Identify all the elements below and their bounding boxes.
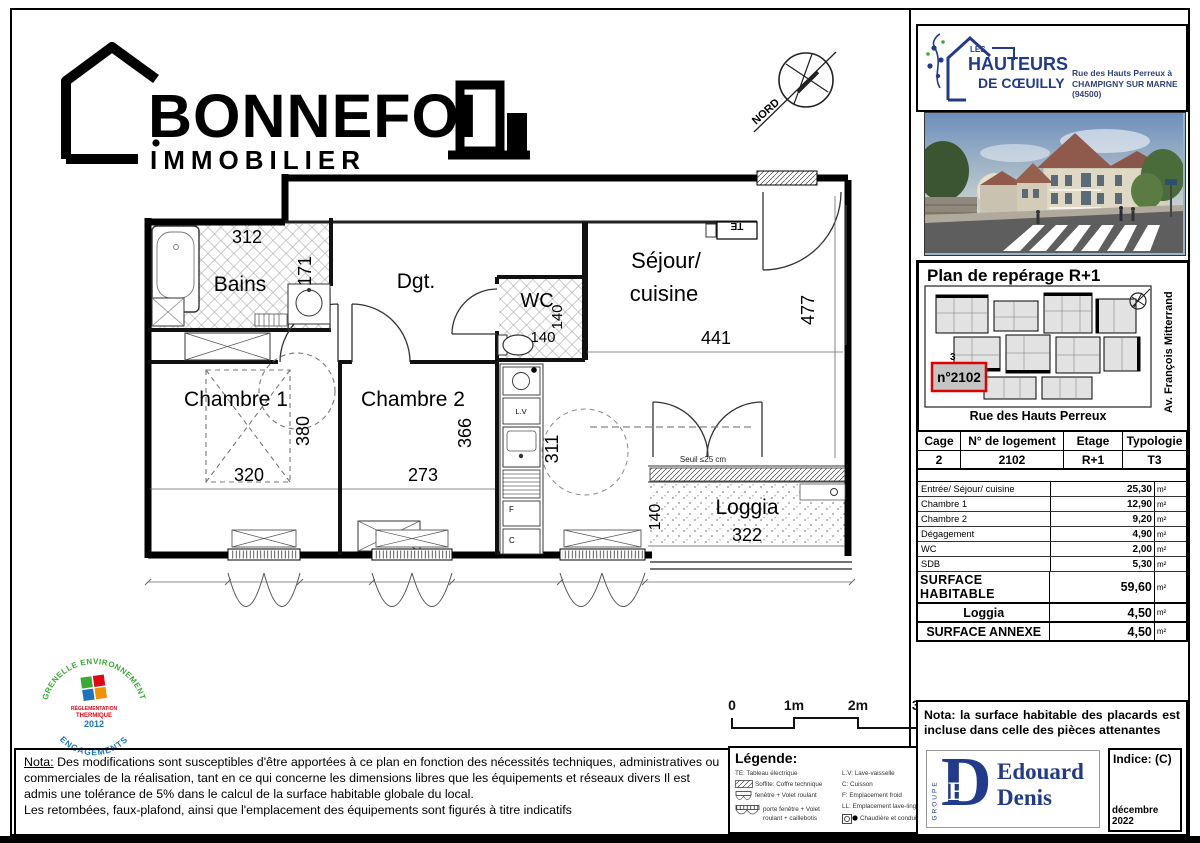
indice-label: Indice: (C) <box>1113 752 1172 766</box>
dim-bains-height: 171 <box>295 256 315 286</box>
building-render <box>925 113 1183 253</box>
val-typologie: T3 <box>1123 451 1187 470</box>
loggia-grille <box>648 466 845 482</box>
dim-loggia-width: 322 <box>732 525 762 545</box>
val-logement: 2102 <box>961 451 1064 470</box>
dim-sejour-height: 477 <box>798 295 818 325</box>
room-dgt: Dgt. <box>397 270 436 293</box>
loggia-corner <box>800 484 845 500</box>
dim-kitchen-height: 311 <box>542 435 562 464</box>
table-gap <box>918 470 1186 482</box>
loggia-row: Loggia 4,50 m² <box>918 603 1186 622</box>
reperage-title: Plan de repérage R+1 <box>927 266 1100 286</box>
scale-bar-line <box>732 718 922 728</box>
wc-door <box>452 289 497 334</box>
shower-box-icon <box>152 298 184 326</box>
edouard-denis-logo: GROUPE D E Edouard Denis <box>926 750 1100 828</box>
branch-icon <box>926 34 945 88</box>
dim-wc-width: 140 <box>530 329 555 346</box>
dim-wc-height: 140 <box>549 304 566 329</box>
scale-2m: 2m <box>848 697 868 713</box>
project-sub: DE CŒUILLY <box>978 75 1065 91</box>
soffite-icon <box>735 780 753 788</box>
street-label-right: Av. François Mitterrand <box>1163 281 1175 413</box>
grenelle-year: 2012 <box>84 719 104 729</box>
scale-0: 0 <box>728 697 736 713</box>
buildings-icon <box>448 85 530 155</box>
room-sejour-line1: Séjour/ <box>631 248 702 273</box>
legend-title: Légende: <box>735 750 797 766</box>
bed1-dashed <box>206 353 335 482</box>
te-label: TE <box>730 220 743 231</box>
window-1 <box>228 530 300 607</box>
col-typologie: Typologie <box>1123 432 1187 451</box>
grenelle-squares-icon <box>80 675 107 702</box>
legend-item: C: Cuisson <box>842 780 922 789</box>
reperage-box: Plan de repérage R+1 3 n°2102 <box>916 260 1190 434</box>
table-row: SDB 5,30 m² <box>918 557 1186 572</box>
nota-left-label: Nota: <box>24 755 54 769</box>
washbasin-icon <box>288 284 330 324</box>
scale-1m: 1m <box>784 697 804 713</box>
room-chambre2: Chambre 2 <box>361 388 465 411</box>
reperage-map: 3 n°2102 <box>924 285 1160 409</box>
c-label: C <box>509 536 515 545</box>
window-3 <box>560 530 645 607</box>
bonnefoi-logo: BONNEFOI IMMOBILIER <box>52 33 532 173</box>
project-address: Rue des Hauts Perreux à CHAMPIGNY SUR MA… <box>1072 68 1184 100</box>
address-line2: CHAMPIGNY SUR MARNE (94500) <box>1072 79 1184 100</box>
project-name: HAUTEURS <box>968 54 1068 74</box>
boiler-icon <box>503 367 540 395</box>
table-row: Chambre 2 9,20 m² <box>918 512 1186 527</box>
loggia-door-right <box>707 402 762 457</box>
nota-left-text: Des modifications sont susceptibles d'êt… <box>24 755 719 801</box>
groupe-label: GROUPE <box>932 761 939 821</box>
dim-ch1-width: 320 <box>234 465 264 485</box>
house-icon <box>66 47 156 159</box>
nota-right-label: Nota: <box>924 708 955 722</box>
ed-monogram-e: E <box>948 777 965 807</box>
col-etage: Etage <box>1064 432 1123 451</box>
windows <box>228 530 645 607</box>
table-row: Chambre 1 12,90 m² <box>918 497 1186 512</box>
lv-label: L.V <box>515 407 526 416</box>
surface-habitable-row: SURFACE HABITABLE 59,60 m² <box>918 572 1186 603</box>
legend-item: Soffite: Coffre technique <box>735 780 837 789</box>
room-areas-table: Entrée/ Séjour/ cuisine 25,30 m² Chambre… <box>918 482 1186 572</box>
legend-right-column: L.V: Lave-vaisselle C: Cuisson F: Emplac… <box>842 769 922 827</box>
val-etage: R+1 <box>1064 451 1123 470</box>
address-line1: Rue des Hauts Perreux à <box>1072 68 1184 79</box>
room-loggia: Loggia <box>715 496 778 519</box>
sink-icon <box>503 427 540 467</box>
legend-box: Légende: TE: Tableau électrique Soffite:… <box>728 746 926 834</box>
compass-label: NORD <box>750 97 782 128</box>
legend-item: L.V: Lave-vaisselle <box>842 769 922 778</box>
legend-item: fenêtre + Volet roulant <box>735 791 837 803</box>
table-row: Entrée/ Séjour/ cuisine 25,30 m² <box>918 482 1186 497</box>
dim-ch2-height: 366 <box>455 418 475 448</box>
building-photo <box>924 112 1186 256</box>
hauteurs-logo: LES HAUTEURS DE CŒUILLY <box>918 26 1088 106</box>
publisher-name: Edouard Denis <box>997 759 1084 812</box>
porte-fenetre-icon <box>735 805 761 818</box>
unit-header-table: Cage N° de logement Etage Typologie 2 21… <box>918 432 1186 470</box>
legend-item: Chaudière et conduit <box>842 814 922 825</box>
bottom-bar <box>0 836 1200 843</box>
grenelle-line1: RÉGLEMENTATION <box>71 704 118 712</box>
nota-left-text2: Les retombées, faux-plafond, ainsi que l… <box>24 803 572 817</box>
te-small-box <box>706 224 716 237</box>
north-compass-icon: NORD <box>742 28 862 146</box>
loggia-door-left <box>653 402 708 457</box>
dim-sejour-width: 441 <box>701 328 731 348</box>
radiator-icon <box>255 314 287 326</box>
room-chambre1: Chambre 1 <box>184 388 288 411</box>
cage-label: 3 <box>950 352 956 363</box>
nota-right-text: Nota: la surface habitable des placards … <box>924 708 1180 739</box>
dim-bains-width: 312 <box>232 227 262 247</box>
closet-icon <box>185 333 270 360</box>
entry-door <box>763 192 841 270</box>
window-legend-icon <box>735 791 753 803</box>
street-label-bottom: Rue des Hauts Perreux <box>923 409 1153 423</box>
table-row: WC 2,00 m² <box>918 542 1186 557</box>
legend-item: TE: Tableau électrique <box>735 769 837 778</box>
nota-right-box: Nota: la surface habitable des placards … <box>916 700 1188 836</box>
seuil-note: Seuil ≤25 cm <box>680 455 727 464</box>
dim-ch2-width: 273 <box>408 465 438 485</box>
unit-highlight-label: n°2102 <box>937 370 981 385</box>
project-les: LES <box>970 45 986 54</box>
entrance-threshold <box>757 171 817 185</box>
surface-summary-table: SURFACE HABITABLE 59,60 m² Loggia 4,50 m… <box>918 572 1186 640</box>
plan-document-page: BONNEFOI IMMOBILIER NORD <box>0 0 1200 843</box>
chambre2-door <box>352 304 410 362</box>
date-label: décembre 2022 <box>1112 805 1180 827</box>
legend-item: LL: Emplacement lave-linge <box>842 802 922 811</box>
surface-annexe-row: SURFACE ANNEXE 4,50 m² <box>918 622 1186 640</box>
dim-loggia-height: 140 <box>647 504 664 531</box>
indice-box: Indice: (C) décembre 2022 <box>1108 748 1182 832</box>
legend-left-column: TE: Tableau électrique Soffite: Coffre t… <box>735 769 837 826</box>
loggia-rail <box>650 562 852 569</box>
nota-left-box: Nota: Des modifications sont susceptible… <box>14 748 734 836</box>
dim-ch1-height: 380 <box>293 416 313 446</box>
table-row: Dégagement 4,90 m² <box>918 527 1186 542</box>
col-logement: N° de logement <box>961 432 1064 451</box>
floor-plan: 312 171 Bains Dgt. WC 140 140 Séjour/ cu… <box>135 168 880 660</box>
room-bains: Bains <box>214 273 267 296</box>
val-cage: 2 <box>918 451 961 470</box>
grenelle-environnement-logo: GRENELLE ENVIRONNEMENT ENGAGEMENTS RÉGLE… <box>32 648 157 760</box>
window-2 <box>372 530 452 607</box>
f-label: F <box>509 505 514 514</box>
drainer <box>503 470 540 498</box>
toilet-icon <box>498 335 533 355</box>
scale-bar: 0 1m 2m 3m <box>722 692 932 742</box>
brand-name: BONNEFOI <box>148 82 478 150</box>
chaudiere-icon <box>842 814 858 825</box>
legend-item: porte fenêtre + Volet roulant + caillebo… <box>735 805 837 823</box>
legend-item: F: Emplacement froid <box>842 791 922 800</box>
col-cage: Cage <box>918 432 961 451</box>
room-sejour-line2: cuisine <box>630 281 698 306</box>
unit-info-table: Cage N° de logement Etage Typologie 2 21… <box>916 430 1188 642</box>
